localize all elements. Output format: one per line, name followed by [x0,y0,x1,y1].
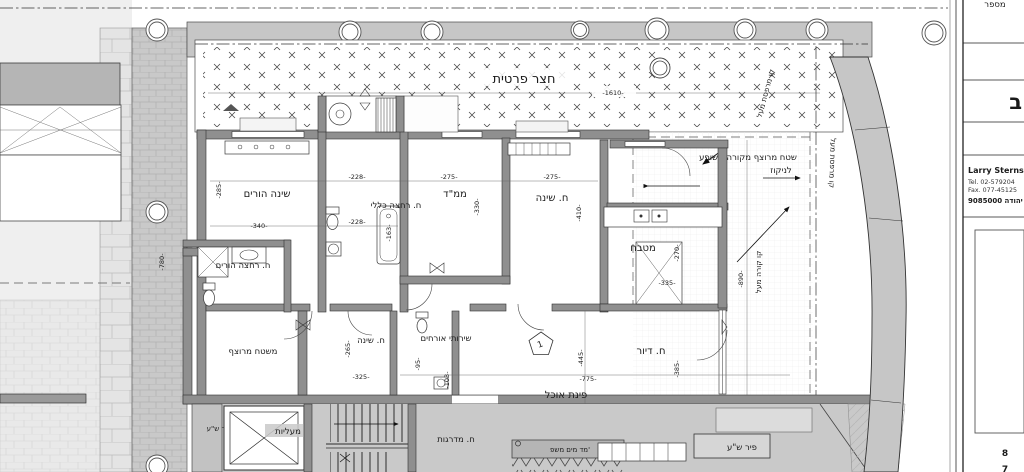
architect-tel: Tel. 02-579204 [967,179,1015,186]
title-number-label: מספר [984,0,1005,10]
ac-ladder-unit [376,98,396,132]
title-block-letter: ב [1009,90,1022,114]
label-parents-bathroom: ח. רחצה הורים [216,261,271,271]
lower-left-paving [0,300,102,472]
courtyard-hatch [203,47,836,127]
covered-area-note-2: לניקוז [770,166,792,176]
neighbor-truss-room [0,105,121,221]
architect-address: 9085000 יהודה [968,197,1023,205]
dim-gb-height: -163- [385,224,393,242]
dim-mamad-depth: -330- [473,198,481,216]
beam-line-note: קו קורה מעל [754,251,763,294]
dim-b2-width: -275- [543,173,561,181]
left-walkway-area: -780- [0,0,187,472]
shaft-right-box: פיר ש"ע [694,434,770,458]
washing-machine [329,103,351,125]
covered-area-note-1: שטח מרוצף מקורה משופע [699,153,797,163]
architect-fax: Fax. 077-45125 [968,187,1017,194]
label-dining: פינת אוכל [545,390,588,401]
elevator [224,406,304,470]
label-water-meter: מד מים משפ' [550,446,590,454]
dim-liv-depth: -445- [577,349,585,367]
dim-b3-depth: -265- [344,340,352,358]
dim-yard-width: -1610- [602,89,624,97]
yard-label: חצר פרטית [492,72,555,87]
label-living: ח. דיור [637,346,666,357]
title-inner-box [975,230,1024,433]
room-labels: שינה הורים ח. רחצה כללי ח. רחצה הורים ממ… [216,189,666,401]
dim-gb-bot: -228- [348,218,366,226]
dim-kit-width: -335- [658,279,676,287]
label-guest-wc: שירותי אורחים [420,334,471,344]
label-paved-deck: משטח מרוצף [229,347,278,357]
label-stairwell: ח. מדרגות [437,435,475,445]
floor-plan-drawing: -780- -1610- חצר פרטית [0,0,1024,472]
dim-b3-width: -325- [352,373,370,381]
page-number-bottom: 7 [1002,465,1008,472]
dim-wc-height: -103- [443,371,451,389]
label-bedroom-bottom: ח. שינה [357,336,385,346]
label-general-bathroom: ח. רחצה כללי [371,201,422,211]
dim-liv-right: -385- [673,360,681,378]
building-core: פיר ש"ע מעליות ח. מדרגות מד מים משפ' [192,404,905,472]
neighbor-wall-bar [0,394,86,403]
shaft-left-box [192,404,222,472]
dim-b2-depth: -410- [575,204,583,222]
closets [225,141,570,155]
level-marker-text: 1 [536,339,545,350]
dim-gb-top: -228- [348,173,366,181]
dim-terrace-length: -890- [737,270,745,288]
vent-grille [598,443,686,461]
label-bedroom-top: ח. שינה [536,193,569,204]
dim-walkway: -780- [158,253,166,271]
dim-pb-width: -340- [250,222,268,230]
dim-kit-depth: -270- [673,244,681,262]
title-block: מספר ב Larry Sterns Tel. 02-579204 Fax. … [950,0,1024,472]
label-parents-bedroom: שינה הורים [244,189,291,200]
label-mamad: ממ"ד [443,189,467,200]
corner-column [922,21,946,45]
page-number-top: 8 [1002,449,1008,459]
architect-name: Larry Sterns [968,166,1024,175]
parents-bathroom-fixtures [198,247,266,306]
label-elevators: מעליות [275,427,301,437]
dim-pb-depth: -285- [215,181,223,199]
dim-liv-width: -775- [579,375,597,383]
balcony-line-note-2: קו מרפסת מעל [827,138,838,188]
label-shaft-right: פיר ש"ע [727,443,757,453]
neighbor-slab [0,63,120,105]
dim-wc-width: -95- [414,357,422,371]
floor-plan-sheet: -780- -1610- חצר פרטית [0,0,1024,472]
dim-mamad-width: -275- [440,173,458,181]
walkway-strip [132,28,187,472]
label-kitchen: מטבח [630,243,656,254]
